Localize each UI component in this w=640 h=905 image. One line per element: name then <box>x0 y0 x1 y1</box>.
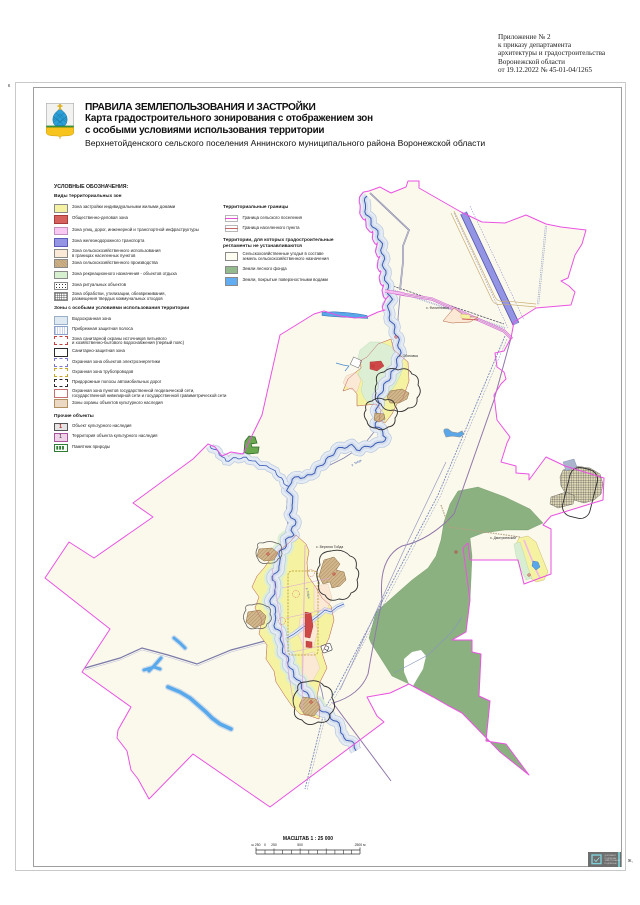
svg-text:с. Обяновка: с. Обяновка <box>399 354 418 358</box>
svg-text:с. Верхняя Тойда: с. Верхняя Тойда <box>316 545 343 549</box>
svg-text:х. Филипповка: х. Филипповка <box>426 306 449 310</box>
svg-text:х. Дмитриевский: х. Дмитриевский <box>490 536 516 540</box>
